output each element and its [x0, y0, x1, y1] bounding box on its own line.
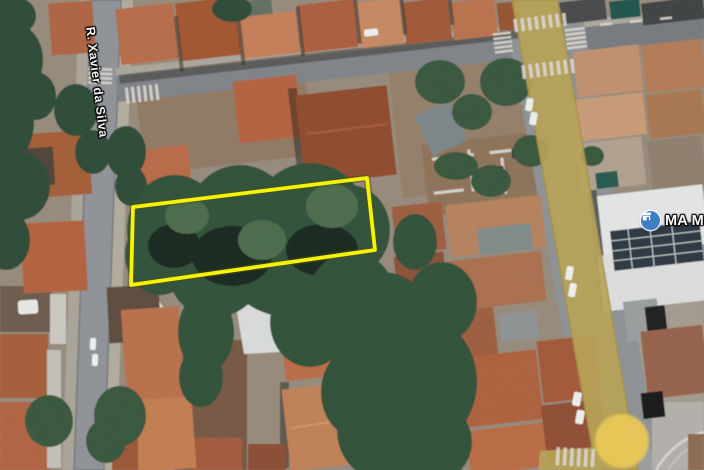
map-viewport[interactable]: R. Xavier da Silva MA Mat: [0, 0, 704, 470]
satellite-imagery: [0, 0, 704, 470]
store-icon: [641, 211, 660, 230]
place-label-text: MA Mat: [665, 213, 704, 229]
intersection-highlight: [595, 414, 649, 468]
store-icon-glyph: [641, 211, 652, 222]
place-label[interactable]: MA Mat: [641, 211, 704, 230]
